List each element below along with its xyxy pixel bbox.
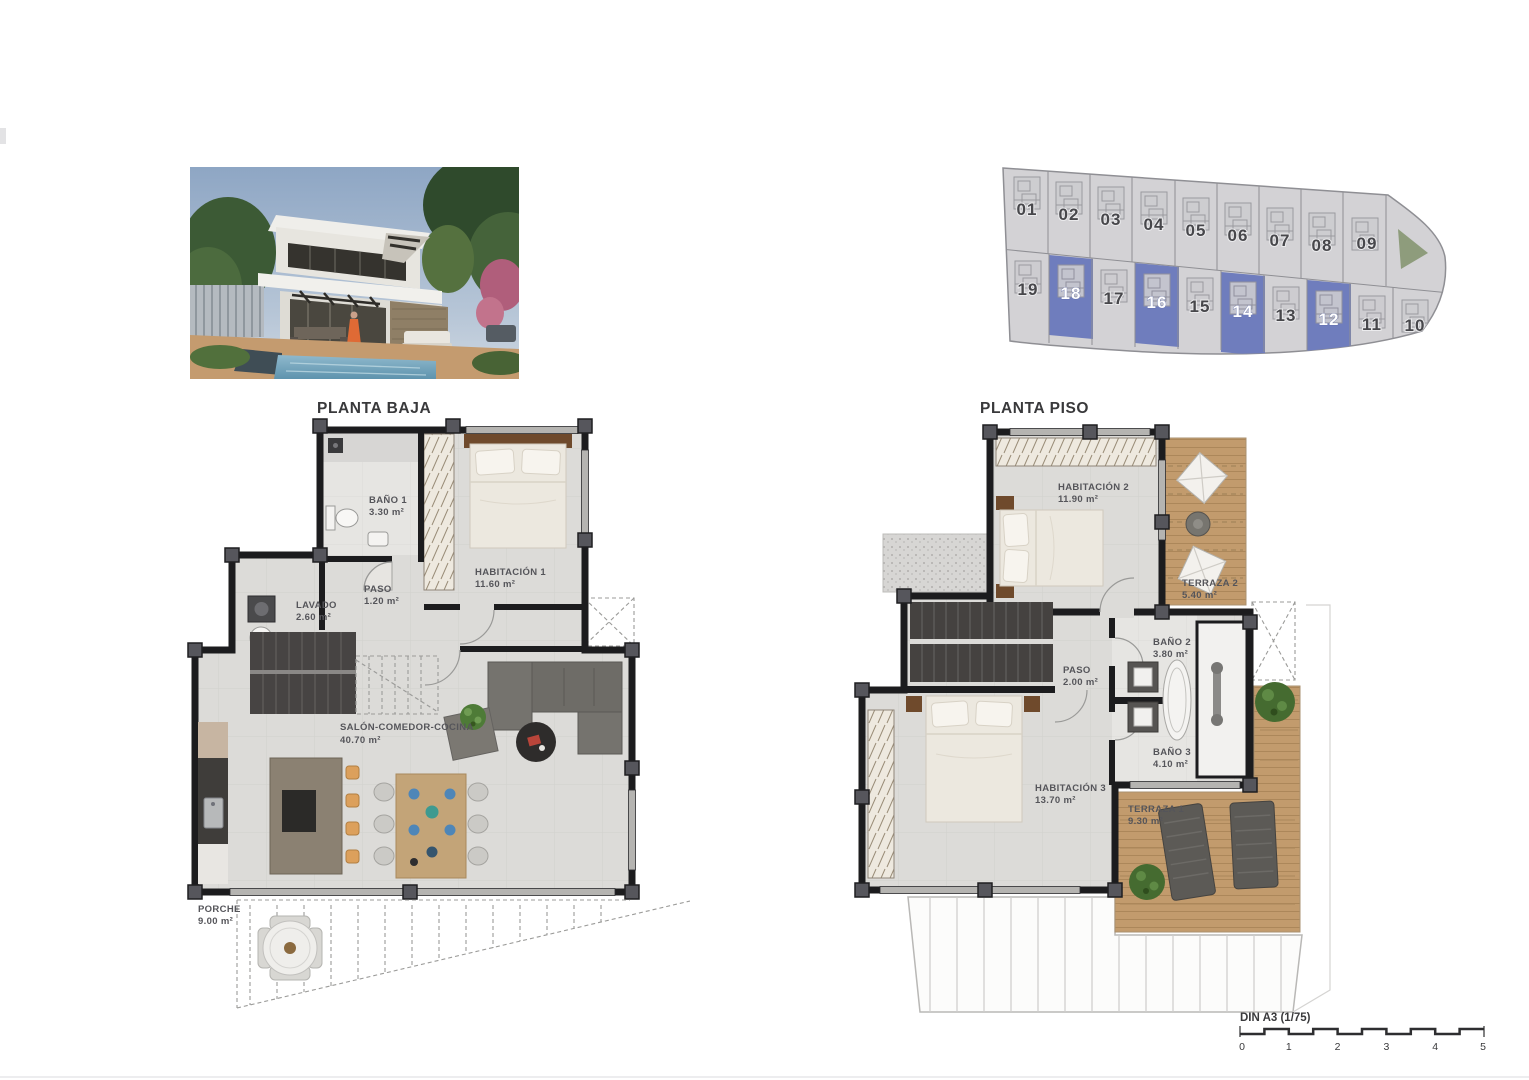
site-plot-number: 03 — [1101, 210, 1122, 229]
room-area: 1.20 m² — [364, 596, 399, 607]
lounger-icon — [1230, 801, 1278, 889]
site-plot-number: 11 — [1362, 315, 1382, 334]
room-label: BAÑO 3 — [1153, 747, 1191, 758]
room-area: 4.10 m² — [1153, 759, 1188, 770]
room-area: 40.70 m² — [340, 735, 381, 746]
room-label: PASO — [364, 584, 392, 595]
room-area: 13.70 m² — [1035, 795, 1076, 806]
page-bottom-edge — [0, 1076, 1529, 1078]
room-area: 3.30 m² — [369, 507, 404, 518]
room-area: 9.00 m² — [198, 916, 233, 927]
floor-plan-sheet: 01 02 03 04 05 06 07 08 09 19 18 17 16 1… — [0, 0, 1529, 1080]
kitchen-counter-icon — [198, 722, 228, 884]
washer-icon — [248, 596, 275, 622]
room-area: 11.90 m² — [1058, 494, 1098, 505]
planta-piso-plan: HABITACIÓN 2 11.90 m² TERRAZA 2 5.40 m² … — [850, 400, 1350, 1025]
scale-tick: 4 — [1432, 1041, 1438, 1053]
room-label: TERRAZA 2 — [1182, 578, 1238, 589]
roof-void — [584, 598, 634, 646]
site-plot-number: 06 — [1228, 226, 1249, 245]
site-plan: 01 02 03 04 05 06 07 08 09 19 18 17 16 1… — [1000, 165, 1452, 365]
site-plot-number: 16 — [1147, 293, 1168, 312]
coffee-table-icon — [516, 722, 556, 762]
room-label: BAÑO 1 — [369, 495, 407, 506]
bed-icon — [996, 496, 1103, 598]
wardrobe-icon — [424, 434, 454, 590]
villa-photo — [190, 167, 519, 379]
site-plot-number: 07 — [1270, 231, 1291, 250]
shower-area — [1197, 622, 1247, 777]
scale-tick: 2 — [1335, 1041, 1341, 1053]
site-plot-number: 18 — [1061, 284, 1082, 303]
site-plot-number: 04 — [1144, 215, 1165, 234]
room-area: 11.60 m² — [475, 579, 515, 590]
site-plot-number: 01 — [1017, 200, 1038, 219]
scale-label: DIN A3 (1/75) — [1240, 1012, 1311, 1024]
sink-icon — [368, 532, 388, 546]
roof-void — [1252, 602, 1295, 680]
room-label: SALÓN-COMEDOR-COCINA — [340, 721, 474, 733]
site-plot-number: 19 — [1018, 280, 1039, 299]
room-area: 2.00 m² — [1063, 677, 1098, 688]
bathtub-icon — [1163, 660, 1191, 740]
site-plot-number: 09 — [1357, 234, 1378, 253]
site-plot-number: 17 — [1104, 289, 1125, 308]
scale-tick: 5 — [1480, 1041, 1486, 1053]
site-plot-number: 15 — [1190, 297, 1211, 316]
room-area: 5.40 m² — [1182, 590, 1217, 601]
room-label: BAÑO 2 — [1153, 637, 1191, 648]
site-plot-number: 13 — [1276, 306, 1297, 325]
room-area: 3.80 m² — [1153, 649, 1188, 660]
shower-icon — [328, 438, 343, 453]
plant-icon — [1255, 682, 1295, 722]
room-label: HABITACIÓN 2 — [1058, 481, 1129, 493]
planta-baja-plan: BAÑO 1 3.30 m² HABITACIÓN 1 11.60 m² PAS… — [170, 400, 690, 1025]
site-plot-number: 10 — [1405, 316, 1426, 335]
room-label: HABITACIÓN 1 — [475, 566, 546, 578]
room-area: 9.30 m² — [1128, 816, 1163, 827]
porch-table-icon — [258, 916, 322, 980]
fence — [190, 285, 264, 337]
site-plot-number: 08 — [1312, 236, 1333, 255]
site-plot-number: 02 — [1059, 205, 1080, 224]
plant-icon — [1129, 864, 1165, 900]
stairs-icon — [910, 602, 1053, 682]
scale-bar: DIN A3 (1/75) 0 1 2 3 4 5 — [1238, 1010, 1494, 1058]
room-label: HABITACIÓN 3 — [1035, 782, 1106, 794]
scale-tick: 0 — [1239, 1041, 1245, 1053]
room-label: TERRAZA 1 — [1128, 804, 1184, 815]
bed-icon — [464, 434, 572, 548]
scale-ruler — [1240, 1029, 1484, 1034]
site-plot-number: 14 — [1233, 302, 1254, 321]
porch-pergola — [237, 900, 690, 1008]
scale-tick: 3 — [1383, 1041, 1389, 1053]
room-label: PORCHE — [198, 904, 241, 915]
room-label: LAVADO — [296, 600, 337, 611]
site-plot-number: 12 — [1319, 310, 1340, 329]
room-area: 2.60 m² — [296, 612, 331, 623]
site-plot-number: 05 — [1186, 221, 1207, 240]
gravel-area — [883, 534, 988, 592]
bed-icon — [906, 696, 1040, 822]
room-label: PASO — [1063, 665, 1091, 676]
page-edge-mark — [0, 128, 6, 144]
scale-tick: 1 — [1286, 1041, 1292, 1053]
dining-table-icon — [374, 774, 488, 878]
